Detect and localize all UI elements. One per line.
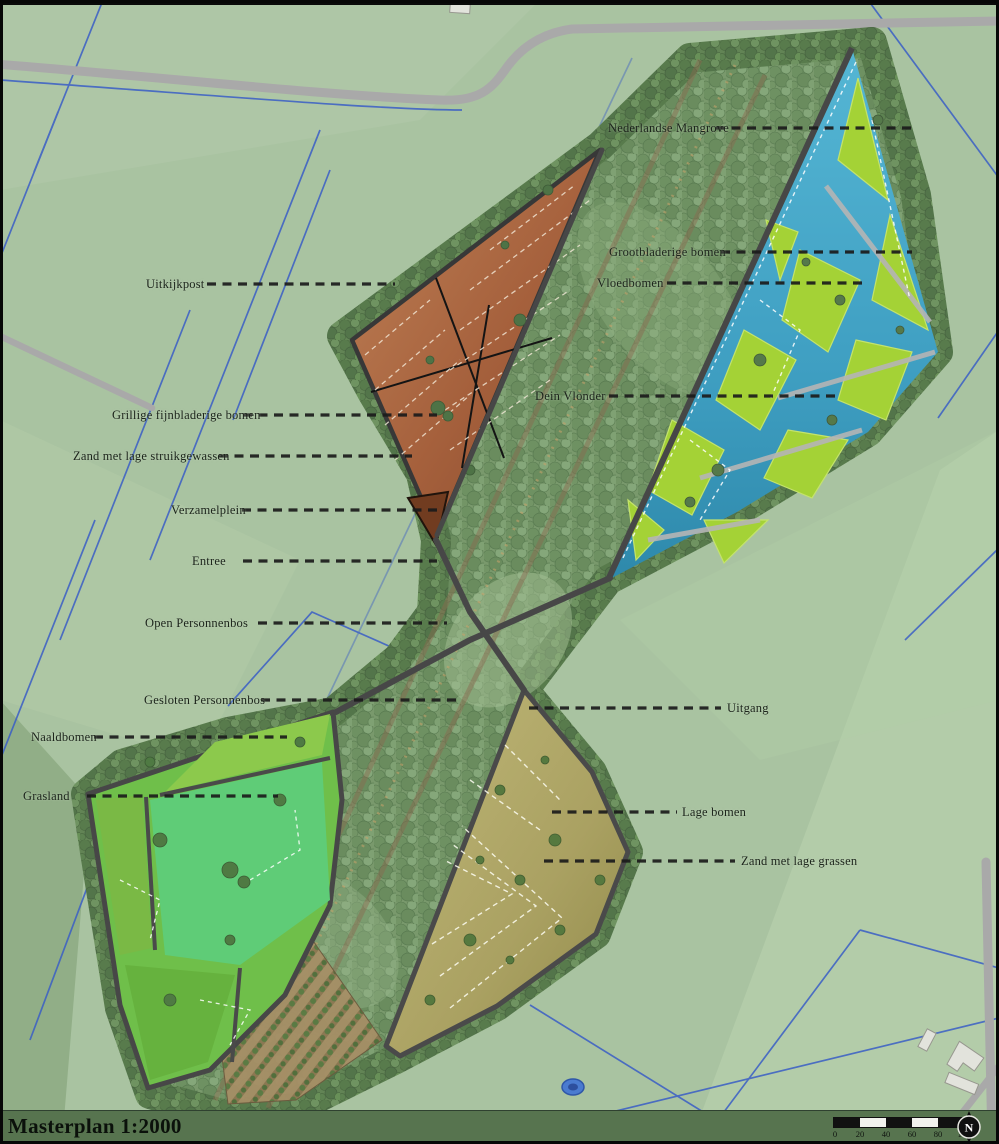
label-zand-met-lage-grassen: Zand met lage grassen [741,855,857,868]
label-uitgang: Uitgang [727,702,769,715]
map-title: Masterplan 1:2000 [8,1114,182,1139]
masterplan-map [0,0,999,1144]
right-edge-road [986,862,992,1144]
label-gesloten-personnenbos: Gesloten Personnenbos [144,694,265,707]
svg-text:N: N [965,1121,974,1135]
label-naaldbomen: Naaldbomen [31,731,97,744]
label-grillige-fijnbladerige-bomen: Grillige fijnbladerige bomen [112,409,261,422]
map-footer: Masterplan 1:2000 0 20 40 60 80 100 [0,1110,999,1144]
scale-bar-segments [833,1117,965,1128]
label-uitkijkpost: Uitkijkpost [146,278,204,291]
label-vloedbomen: Vloedbomen [597,277,664,290]
scale-tick: 60 [908,1129,917,1139]
scale-tick: 80 [934,1129,943,1139]
north-arrow-icon: N [948,1110,990,1144]
label-open-personnenbos: Open Personnenbos [145,617,248,630]
masterplan-canvas: Uitkijkpost Grillige fijnbladerige bomen… [0,0,999,1144]
label-grootbladerige-bomen: Grootbladerige bomen [609,246,726,259]
label-zand-met-lage-struikgewassen: Zand met lage struikgewassen [73,450,230,463]
label-nederlandse-mangrove: Nederlandse Mangrove [608,122,729,135]
scale-tick: 0 [833,1129,837,1139]
scale-tick: 40 [882,1129,891,1139]
pond [562,1079,584,1095]
label-dein-vlonder: Dein Vlonder [535,390,606,403]
label-entree: Entree [192,555,226,568]
scale-tick: 20 [856,1129,865,1139]
label-verzamelplein: Verzamelplein [171,504,246,517]
label-grasland: Grasland [23,790,70,803]
label-lage-bomen: Lage bomen [682,806,746,819]
